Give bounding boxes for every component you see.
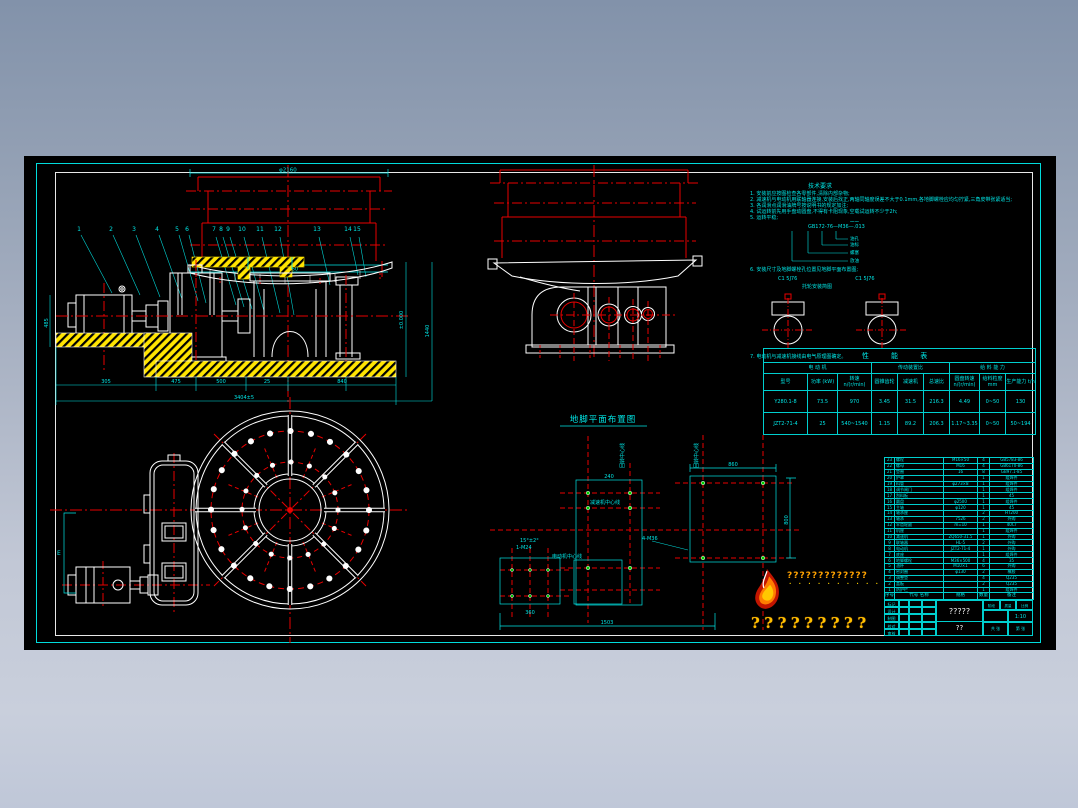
bolt-plan-title: 地脚平面布置图 bbox=[570, 414, 637, 425]
leader-number: 8 bbox=[219, 226, 223, 233]
svg-text:860: 860 bbox=[728, 462, 738, 468]
leader-number: 14 bbox=[344, 226, 352, 233]
svg-text:电动机中心线: 电动机中心线 bbox=[552, 553, 582, 560]
cad-drawing-canvas[interactable]: φ2160 φ1975 φ1960 123456789101112131415 bbox=[24, 156, 1056, 650]
performance-table: 性 能 表 电 动 机 传动装置比 给 料 能 力 型号功率 (kW) 转速 n… bbox=[763, 348, 1036, 435]
leader-number: 10 bbox=[238, 226, 246, 233]
svg-text:GB172-76—M36—.013: GB172-76—M36—.013 bbox=[808, 224, 865, 230]
leader-number: 9 bbox=[226, 226, 230, 233]
leader-number: 2 bbox=[109, 226, 113, 233]
svg-text:240: 240 bbox=[604, 474, 614, 480]
svg-text:螺塞: 螺塞 bbox=[850, 249, 859, 256]
svg-text:840: 840 bbox=[337, 379, 347, 385]
bolt-plan-labels: 回转中心线 回转中心线 减速机中心线 电动机中心线 4-M36 1-M24 15… bbox=[516, 443, 700, 560]
logo-small-text: ????????????? bbox=[787, 572, 881, 581]
gears-front bbox=[540, 293, 675, 361]
disc-front bbox=[488, 256, 702, 284]
dim-right2: 1440 bbox=[425, 325, 431, 338]
drawing-scale: 1:10 bbox=[1008, 610, 1033, 622]
gearbox-plan bbox=[144, 455, 198, 605]
svg-text:360: 360 bbox=[525, 610, 535, 616]
notes-lines: 1. 安装前应按图检查各零部件,清除内部杂物;2. 减速机与电动机用联轴器连接,… bbox=[750, 191, 1042, 221]
leader-number: 3 bbox=[132, 226, 136, 233]
dim-right1: ±0.000 bbox=[399, 311, 405, 330]
svg-text:500: 500 bbox=[216, 379, 226, 385]
svg-text:800: 800 bbox=[784, 515, 790, 525]
note-line-6: 6. 安装尺寸及地脚螺栓孔位置见地脚平面布置图; bbox=[750, 267, 1042, 273]
leader-number: 15 bbox=[353, 226, 361, 233]
svg-text:减速机中心线: 减速机中心线 bbox=[590, 499, 620, 506]
view-side-elevation: φ2160 φ1975 φ1960 123456789101112131415 bbox=[40, 165, 440, 415]
leader-number: 11 bbox=[256, 226, 264, 233]
plan-bracket bbox=[64, 513, 76, 593]
leader-number: 5 bbox=[175, 226, 179, 233]
svg-text:15°±2°: 15°±2° bbox=[520, 538, 539, 544]
leader-number: 4 bbox=[155, 226, 159, 233]
leader-number: 6 bbox=[185, 226, 189, 233]
roller-diagram bbox=[750, 290, 990, 352]
perf-row: JZT2-71-425540~1540 1.1589.2206.3 1.17~3… bbox=[764, 413, 1036, 435]
svg-text:25: 25 bbox=[264, 379, 270, 385]
notes-heading: 技术要求 bbox=[750, 183, 1042, 191]
company-logo: ????????????? • • • • • • • • • • ??????… bbox=[751, 568, 921, 631]
svg-text:4-M36: 4-M36 bbox=[642, 536, 658, 542]
technical-notes: 技术要求 1. 安装前应按图检查各零部件,清除内部杂物;2. 减速机与电动机用联… bbox=[750, 183, 1042, 360]
svg-text:油孔: 油孔 bbox=[850, 235, 859, 242]
svg-text:油标: 油标 bbox=[850, 241, 859, 248]
flame-icon bbox=[751, 568, 783, 612]
view-plan-disc: E bbox=[50, 395, 450, 645]
view-front-elevation bbox=[480, 165, 710, 365]
disc-plan bbox=[191, 411, 389, 609]
svg-text:1503: 1503 bbox=[601, 620, 614, 626]
roller-labels: C1 5J76 C1 5J76 bbox=[750, 276, 1042, 282]
plan-centerlines bbox=[50, 397, 410, 643]
disc-profile bbox=[190, 257, 392, 284]
svg-text:305: 305 bbox=[101, 379, 111, 385]
drawing-sub: ?? bbox=[936, 622, 983, 636]
bracket-label: E bbox=[57, 550, 61, 557]
anchor-bolts bbox=[511, 481, 765, 597]
perf-title: 性 能 表 bbox=[764, 349, 1036, 363]
logo-dots: • • • • • • • • • • bbox=[789, 581, 881, 586]
leader-number: 1 bbox=[77, 226, 81, 233]
foundation-hatch bbox=[56, 333, 396, 377]
thread-spec-diagram: GB172-76—M36—.013 油孔油标螺塞放油 油孔 油标 螺塞 放油 bbox=[778, 221, 958, 265]
svg-text:回转中心线: 回转中心线 bbox=[693, 443, 700, 468]
svg-text:回转中心线: 回转中心线 bbox=[619, 443, 626, 468]
leader-numbers: 123456789101112131415 bbox=[77, 226, 361, 233]
leader-number: 13 bbox=[313, 226, 321, 233]
drive-train bbox=[68, 265, 360, 362]
svg-text:放油: 放油 bbox=[850, 257, 859, 264]
dim-left: 485 bbox=[44, 318, 50, 328]
bottom-dimensions: 30547550025840 bbox=[101, 379, 347, 385]
svg-text:475: 475 bbox=[171, 379, 181, 385]
svg-text:放油: 放油 bbox=[850, 221, 859, 223]
perf-row: Y280.1-873.5970 3.4531.5216.3 4.490~5013… bbox=[764, 391, 1036, 413]
logo-big-text: ????????? bbox=[751, 615, 921, 631]
title-block-info: 阶段质量比例 1:10 共 张第 张 bbox=[983, 600, 1033, 636]
leader-number: 12 bbox=[274, 226, 282, 233]
svg-text:1-M24: 1-M24 bbox=[516, 545, 532, 551]
dim-top: φ2160 bbox=[279, 168, 297, 174]
drawing-name: ????? bbox=[936, 600, 983, 622]
leader-number: 7 bbox=[212, 226, 216, 233]
